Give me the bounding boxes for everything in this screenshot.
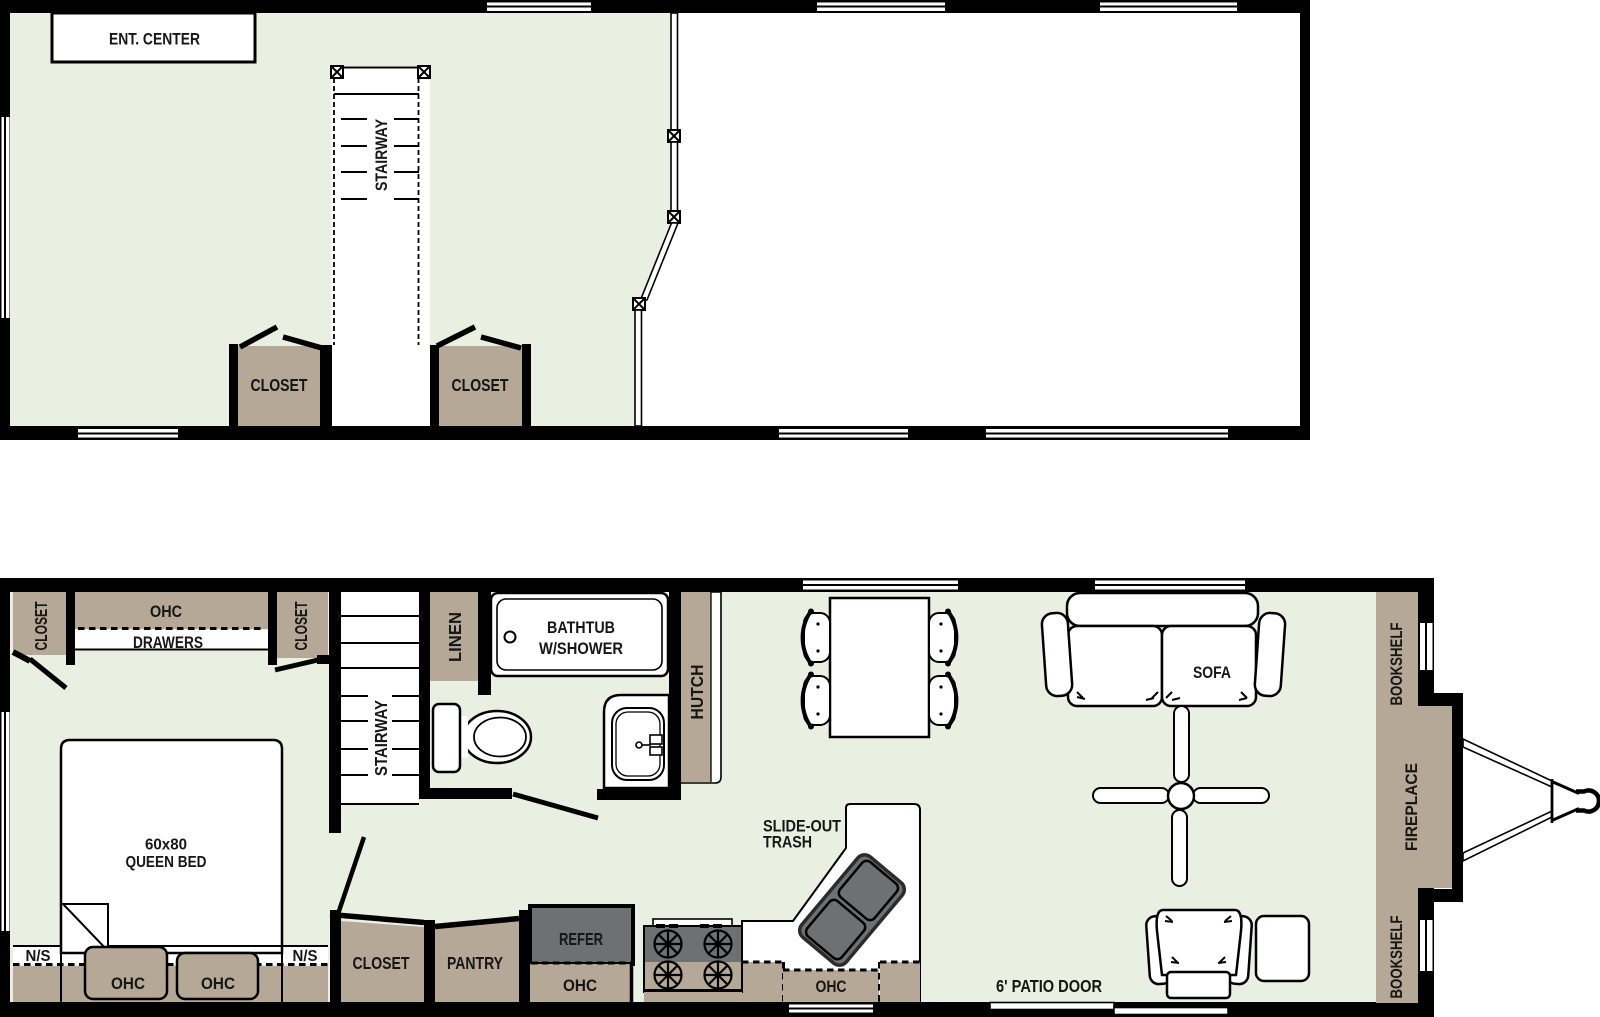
svg-text:OHC: OHC bbox=[816, 977, 847, 996]
svg-text:BOOKSHELF: BOOKSHELF bbox=[1387, 623, 1406, 706]
svg-text:LINEN: LINEN bbox=[445, 612, 465, 662]
svg-text:OHC: OHC bbox=[111, 974, 145, 993]
svg-text:OHC: OHC bbox=[201, 974, 235, 993]
svg-text:OHC: OHC bbox=[563, 976, 597, 995]
svg-text:SOFA: SOFA bbox=[1193, 663, 1231, 682]
svg-text:REFER: REFER bbox=[559, 929, 603, 949]
svg-text:PANTRY: PANTRY bbox=[447, 953, 503, 973]
svg-text:TRASH: TRASH bbox=[763, 833, 812, 852]
svg-text:CLOSET: CLOSET bbox=[291, 601, 311, 650]
svg-text:FIREPLACE: FIREPLACE bbox=[1402, 763, 1421, 851]
svg-text:HUTCH: HUTCH bbox=[687, 665, 707, 720]
svg-text:CLOSET: CLOSET bbox=[353, 953, 410, 973]
svg-text:ENT. CENTER: ENT. CENTER bbox=[109, 30, 200, 49]
svg-text:CLOSET: CLOSET bbox=[251, 375, 308, 395]
svg-text:QUEEN BED: QUEEN BED bbox=[126, 854, 207, 871]
svg-text:CLOSET: CLOSET bbox=[31, 601, 51, 650]
svg-text:CLOSET: CLOSET bbox=[452, 375, 509, 395]
svg-text:OHC: OHC bbox=[150, 602, 182, 621]
svg-text:W/SHOWER: W/SHOWER bbox=[539, 640, 623, 658]
svg-text:N/S: N/S bbox=[293, 948, 318, 965]
svg-text:STAIRWAY: STAIRWAY bbox=[372, 118, 391, 191]
svg-text:BATHTUB: BATHTUB bbox=[547, 619, 615, 637]
svg-text:6' PATIO DOOR: 6' PATIO DOOR bbox=[996, 976, 1102, 996]
svg-text:STAIRWAY: STAIRWAY bbox=[371, 700, 391, 776]
svg-text:60x80: 60x80 bbox=[145, 837, 187, 854]
svg-text:N/S: N/S bbox=[26, 948, 51, 965]
svg-text:BOOKSHELF: BOOKSHELF bbox=[1387, 916, 1406, 999]
